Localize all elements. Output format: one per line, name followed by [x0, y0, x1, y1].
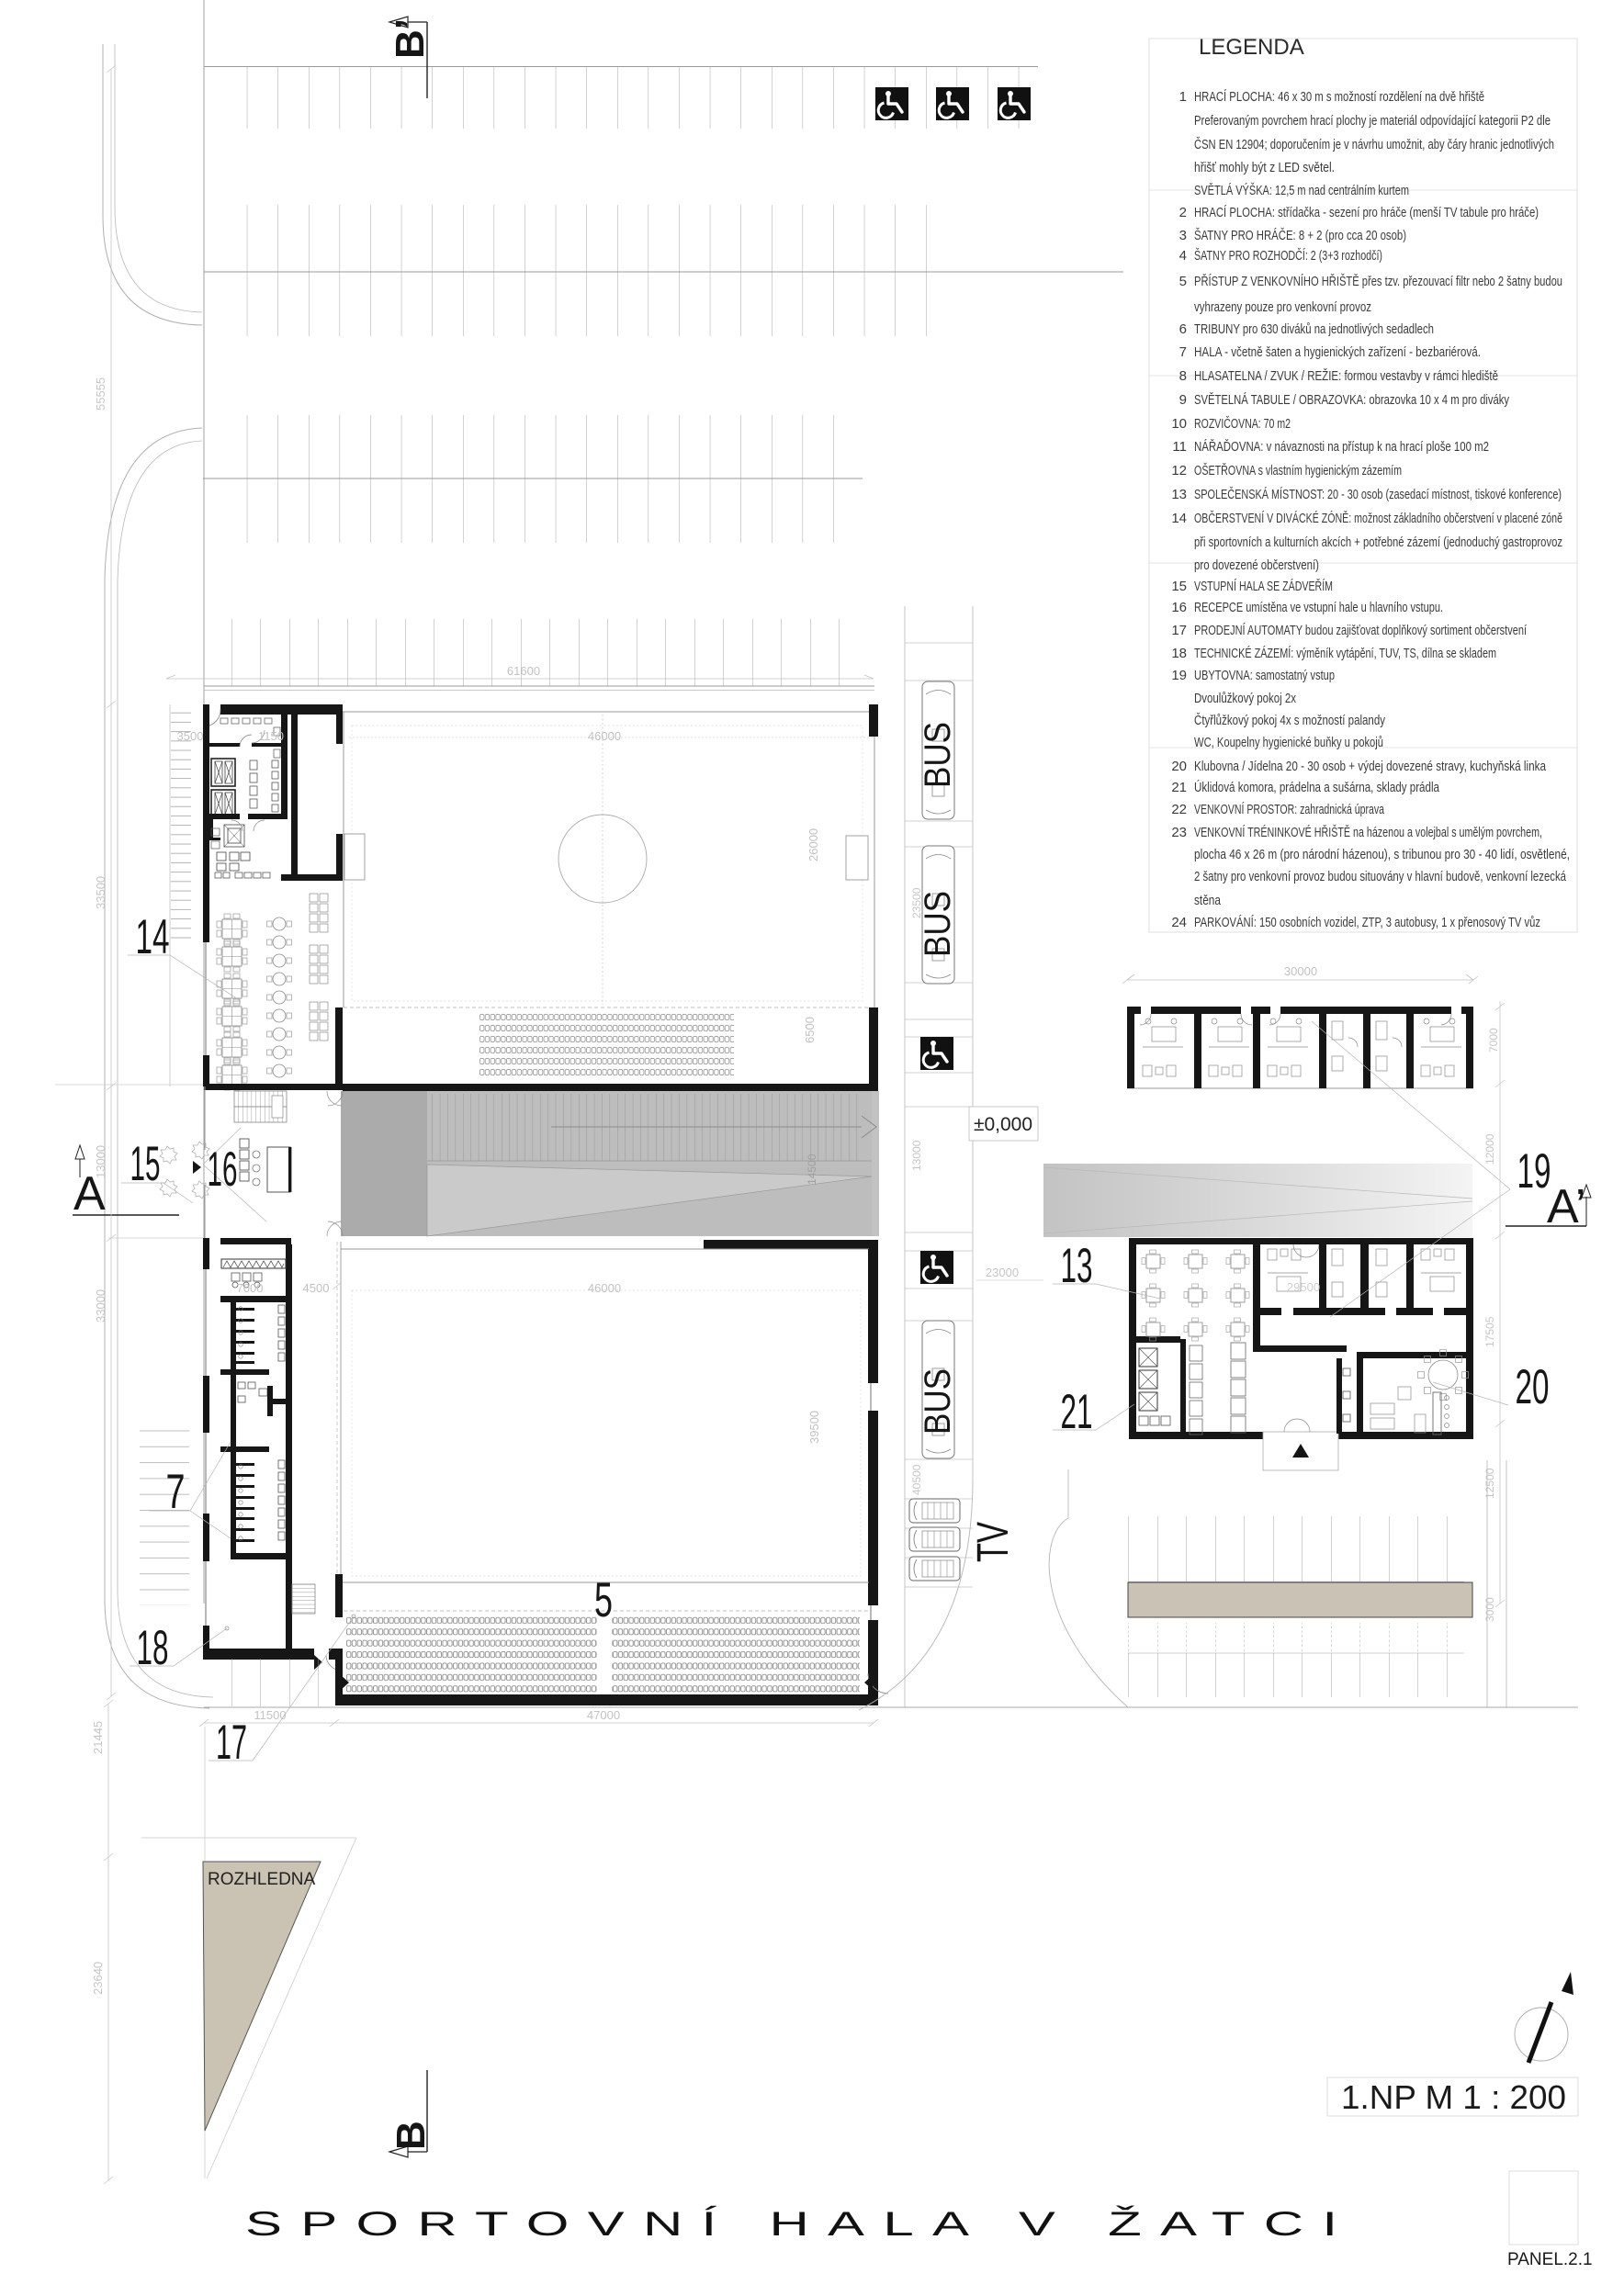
svg-text:23: 23 [1171, 825, 1187, 840]
svg-text:stěna: stěna [1194, 893, 1222, 908]
svg-text:TECHNICKÉ ZÁZEMÍ: výměník vytá: TECHNICKÉ ZÁZEMÍ: výměník vytápění, TUV,… [1194, 646, 1496, 661]
svg-text:hřišť mohly být z LED světel.: hřišť mohly být z LED světel. [1194, 160, 1335, 175]
svg-text:1: 1 [1179, 89, 1187, 105]
svg-text:Úklidová komora, prádelna a su: Úklidová komora, prádelna a sušárna, skl… [1194, 780, 1440, 795]
svg-text:46000: 46000 [588, 1281, 621, 1295]
svg-text:3000: 3000 [1483, 1597, 1496, 1622]
svg-text:5: 5 [1179, 274, 1187, 289]
svg-text:24: 24 [1171, 915, 1187, 930]
svg-text:30000: 30000 [1284, 964, 1317, 978]
svg-text:18: 18 [137, 1621, 169, 1675]
svg-text:PŘÍSTUP Z VENKOVNÍHO HŘIŠTĚ př: PŘÍSTUP Z VENKOVNÍHO HŘIŠTĚ přes tzv. př… [1194, 274, 1562, 289]
svg-text:SVĚTLÁ VÝŠKA: 12,5 m nad centr: SVĚTLÁ VÝŠKA: 12,5 m nad centrálním kurt… [1194, 183, 1409, 198]
svg-text:PRODEJNÍ AUTOMATY budou zajišť: PRODEJNÍ AUTOMATY budou zajišťovat doplň… [1194, 623, 1528, 638]
svg-text:8: 8 [1179, 368, 1187, 384]
svg-text:LEGENDA: LEGENDA [1199, 35, 1304, 60]
svg-text:40500: 40500 [910, 1464, 923, 1495]
svg-text:13: 13 [1061, 1239, 1093, 1293]
svg-text:6500: 6500 [803, 1017, 817, 1043]
svg-text:BUS: BUS [918, 891, 958, 957]
svg-text:13000: 13000 [94, 1145, 107, 1178]
svg-text:20: 20 [1516, 1360, 1550, 1414]
svg-text:12500: 12500 [1483, 1468, 1496, 1499]
svg-text:SPOLEČENSKÁ MÍSTNOST: 20 - 30: SPOLEČENSKÁ MÍSTNOST: 20 - 30 osob (zase… [1194, 487, 1562, 502]
svg-text:ČSN EN 12904; doporučením je v: ČSN EN 12904; doporučením je v návrhu um… [1194, 137, 1554, 152]
svg-text:21: 21 [1061, 1385, 1093, 1439]
svg-text:15: 15 [1171, 579, 1187, 594]
svg-text:9: 9 [1179, 392, 1187, 408]
svg-text:33000: 33000 [94, 1289, 107, 1322]
svg-text:RECEPCE umístěna ve vstupní ha: RECEPCE umístěna ve vstupní hale u hlavn… [1194, 600, 1443, 615]
svg-text:HLASATELNA / ZVUK / REŽIE: for: HLASATELNA / ZVUK / REŽIE: formou vestav… [1194, 368, 1498, 384]
svg-text:PANEL.2.1: PANEL.2.1 [1507, 2250, 1593, 2269]
svg-text:39500: 39500 [807, 1411, 821, 1444]
svg-text:VSTUPNÍ HALA SE ZÁDVEŘÍM: VSTUPNÍ HALA SE ZÁDVEŘÍM [1194, 579, 1333, 594]
svg-text:3: 3 [1179, 228, 1187, 243]
svg-text:ŠATNY PRO ROZHODČÍ: 2 (3+3 roz: ŠATNY PRO ROZHODČÍ: 2 (3+3 rozhodčí) [1194, 248, 1382, 264]
svg-text:±0,000: ±0,000 [974, 1114, 1032, 1135]
svg-text:HRACÍ PLOCHA: střídačka - seze: HRACÍ PLOCHA: střídačka - sezení pro hrá… [1194, 205, 1539, 220]
svg-text:21445: 21445 [91, 1721, 105, 1754]
svg-text:ROZVIČOVNA: 70 m2: ROZVIČOVNA: 70 m2 [1194, 416, 1291, 432]
svg-text:PARKOVÁNÍ: 150 osobních vozide: PARKOVÁNÍ: 150 osobních vozidel, ZTP, 3 … [1194, 915, 1540, 930]
svg-text:4500: 4500 [303, 1281, 330, 1295]
svg-text:SVĚTELNÁ TABULE / OBRAZOVKA: o: SVĚTELNÁ TABULE / OBRAZOVKA: obrazovka 1… [1194, 392, 1509, 408]
svg-text:vyhrazeny pouze pro venkovní p: vyhrazeny pouze pro venkovní provoz [1194, 299, 1371, 315]
svg-text:7000: 7000 [1487, 1028, 1500, 1052]
svg-text:HALA - včetně šaten a hygienic: HALA - včetně šaten a hygienických zaříz… [1194, 344, 1481, 360]
svg-text:12: 12 [1171, 463, 1187, 478]
svg-text:17: 17 [1171, 623, 1187, 638]
svg-text:HRACÍ PLOCHA: 46 x 30 m s možn: HRACÍ PLOCHA: 46 x 30 m s možností rozdě… [1194, 89, 1484, 105]
svg-text:plocha 46 x 26 m (pro národní: plocha 46 x 26 m (pro národní házenou), … [1194, 847, 1570, 862]
svg-text:18: 18 [1171, 646, 1187, 661]
svg-text:10: 10 [1171, 416, 1187, 432]
svg-text:pro dovezené občerstvení): pro dovezené občerstvení) [1194, 557, 1319, 573]
svg-text:14: 14 [136, 910, 170, 964]
svg-text:47000: 47000 [587, 1708, 620, 1722]
svg-text:7: 7 [1179, 344, 1187, 360]
svg-text:21: 21 [1171, 780, 1187, 795]
svg-text:NÁŘAĎOVNA: v návaznosti na pří: NÁŘAĎOVNA: v návaznosti na přístup k na … [1194, 439, 1489, 455]
svg-text:VENKOVNÍ TRÉNINKOVÉ HŘIŠTĚ na: VENKOVNÍ TRÉNINKOVÉ HŘIŠTĚ na házenou a … [1194, 825, 1542, 840]
svg-text:14500: 14500 [806, 1154, 818, 1185]
svg-text:OŠETŘOVNA s vlastním hygienick: OŠETŘOVNA s vlastním hygienickým zázemím [1194, 463, 1402, 478]
svg-text:11: 11 [1172, 439, 1187, 455]
svg-text:Klubovna / Jídelna 20 - 30 oso: Klubovna / Jídelna 20 - 30 osob + výdej … [1194, 759, 1547, 774]
svg-text:55555: 55555 [94, 377, 107, 411]
svg-text:A’: A’ [1547, 1180, 1585, 1233]
svg-text:UBYTOVNA: samostatný vstup: UBYTOVNA: samostatný vstup [1194, 668, 1335, 683]
svg-text:1.NP M 1 : 200: 1.NP M 1 : 200 [1341, 2078, 1566, 2116]
svg-text:BUS: BUS [918, 1368, 958, 1435]
svg-text:VENKOVNÍ PROSTOR: zahradnická: VENKOVNÍ PROSTOR: zahradnická úprava [1194, 802, 1384, 817]
svg-text:17505: 17505 [1483, 1316, 1496, 1347]
svg-text:23500: 23500 [910, 887, 923, 918]
svg-text:29500: 29500 [1287, 1280, 1320, 1294]
svg-text:Čtyřlůžkový pokoj 4x s možnost: Čtyřlůžkový pokoj 4x s možností palandy [1194, 713, 1385, 728]
svg-text:Preferovaným povrchem hrací pl: Preferovaným povrchem hrací plochy je ma… [1194, 113, 1551, 129]
svg-text:20: 20 [1171, 759, 1187, 774]
svg-text:TRIBUNY pro 630 diváků na jedn: TRIBUNY pro 630 diváků na jednotlivých s… [1194, 321, 1434, 337]
svg-text:16: 16 [208, 1142, 238, 1197]
svg-text:Dvoulůžkový pokoj 2x: Dvoulůžkový pokoj 2x [1194, 691, 1296, 706]
svg-text:13: 13 [1171, 487, 1187, 502]
svg-text:13000: 13000 [910, 1140, 923, 1171]
svg-text:33500: 33500 [94, 876, 107, 909]
svg-text:6: 6 [1179, 321, 1187, 337]
svg-text:19: 19 [1171, 668, 1187, 683]
svg-text:TV: TV [969, 1522, 1018, 1562]
svg-text:B: B [389, 2121, 434, 2150]
svg-text:ŠATNY PRO HRÁČE: 8 + 2 (pro cc: ŠATNY PRO HRÁČE: 8 + 2 (pro cca 20 osob) [1194, 228, 1406, 243]
svg-text:23000: 23000 [986, 1266, 1019, 1279]
svg-text:WC, Koupelny hygienické buňky: WC, Koupelny hygienické buňky u pokojů [1194, 735, 1383, 750]
svg-text:B’: B’ [388, 18, 433, 59]
svg-text:19: 19 [1517, 1144, 1551, 1199]
svg-text:22: 22 [1171, 802, 1187, 817]
svg-text:17: 17 [216, 1716, 247, 1770]
svg-text:61600: 61600 [507, 664, 540, 678]
svg-text:12000: 12000 [1483, 1133, 1496, 1165]
svg-text:BUS: BUS [918, 722, 958, 788]
svg-text:OBČERSTVENÍ V DIVÁCKÉ ZÓNĚ: mo: OBČERSTVENÍ V DIVÁCKÉ ZÓNĚ: možnost zákl… [1194, 511, 1562, 526]
svg-text:2: 2 [1179, 205, 1187, 220]
svg-text:ROZHLEDNA: ROZHLEDNA [208, 1870, 316, 1889]
svg-text:3500: 3500 [177, 729, 204, 743]
svg-text:2 šatny pro venkovní provoz bu: 2 šatny pro venkovní provoz budou situov… [1194, 869, 1566, 884]
svg-text:23640: 23640 [91, 1962, 105, 1995]
svg-text:46000: 46000 [588, 729, 621, 743]
svg-text:při sportovních a kulturních a: při sportovních a kulturních akcích + po… [1194, 535, 1562, 550]
svg-text:4: 4 [1179, 248, 1187, 264]
svg-text:5: 5 [594, 1573, 613, 1627]
svg-text:1150: 1150 [258, 729, 284, 743]
svg-text:7000: 7000 [237, 1281, 264, 1295]
svg-text:14: 14 [1171, 511, 1187, 526]
svg-text:16: 16 [1171, 600, 1187, 615]
svg-text:26000: 26000 [806, 828, 820, 861]
